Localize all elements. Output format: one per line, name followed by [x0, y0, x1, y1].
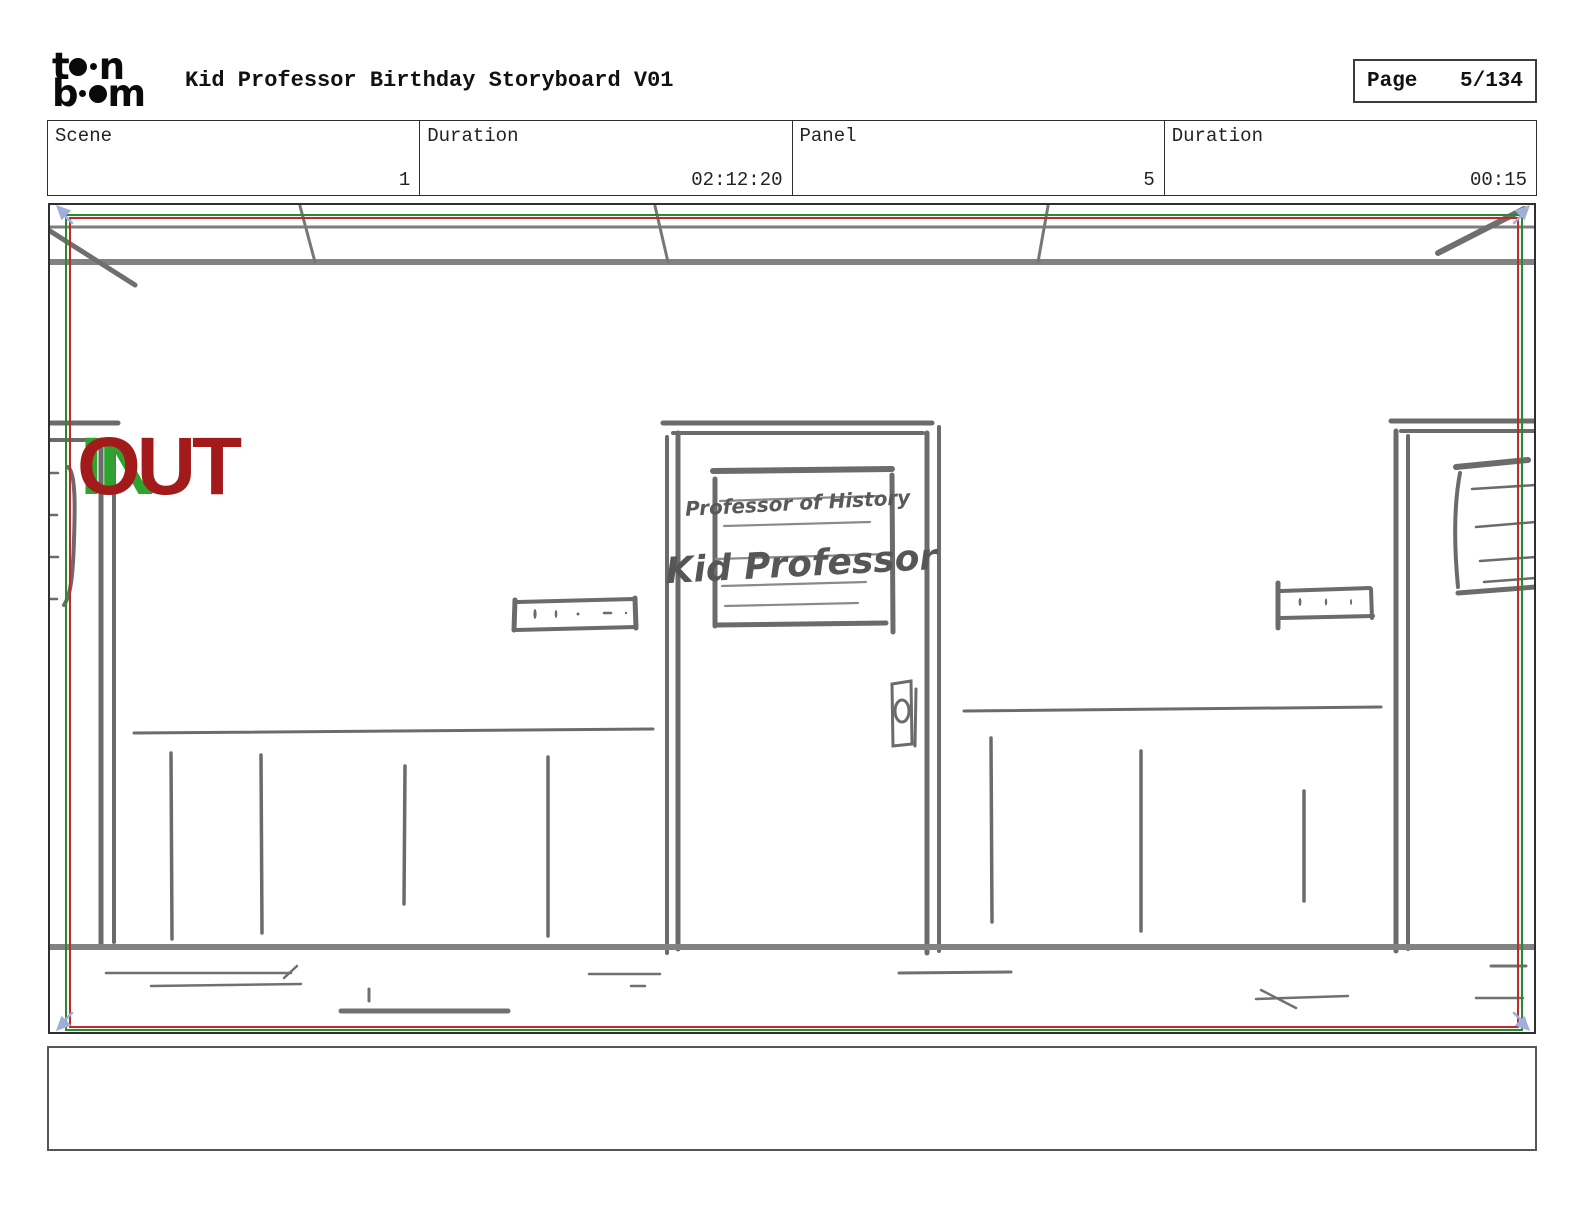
toon-boom-logo: t n b m — [52, 53, 172, 107]
logo-dot-icon — [89, 85, 107, 103]
panel-duration-value: 00:15 — [1470, 169, 1527, 191]
page-value: 5/134 — [1460, 70, 1523, 93]
door-sign-line2: Kid Professor — [665, 537, 941, 592]
panel-label: Panel — [800, 125, 857, 147]
scene-duration-label: Duration — [427, 125, 518, 147]
logo-letter: b — [52, 80, 77, 107]
door-sign-line1: Professor of History — [684, 485, 911, 521]
panel-info-bar: Scene 1 Duration 02:12:20 Panel 5 Durati… — [47, 120, 1537, 196]
panel-duration-label: Duration — [1172, 125, 1263, 147]
scene-value: 1 — [399, 169, 410, 191]
scene-duration-cell: Duration 02:12:20 — [419, 121, 791, 195]
scene-cell: Scene 1 — [48, 121, 419, 195]
panel-value: 5 — [1143, 169, 1154, 191]
storyboard-panel: Professor of History Kid Professor — [48, 203, 1536, 1034]
logo-letter: m — [108, 80, 145, 107]
page-label: Page — [1367, 70, 1417, 93]
camera-out-label: OUT — [77, 426, 238, 508]
logo-row-2: b m — [52, 80, 172, 107]
scene-duration-value: 02:12:20 — [691, 169, 782, 191]
panel-cell: Panel 5 — [792, 121, 1164, 195]
project-title: Kid Professor Birthday Storyboard V01 — [185, 68, 673, 93]
panel-duration-cell: Duration 00:15 — [1164, 121, 1536, 195]
storyboard-export-page: t n b m Kid Professor Birthday Storyboar… — [0, 0, 1584, 1224]
scene-label: Scene — [55, 125, 112, 147]
logo-dot-icon — [79, 90, 86, 97]
page-number-box: Page 5/134 — [1353, 59, 1537, 103]
caption-box — [47, 1046, 1537, 1151]
hallway-sketch: Professor of History Kid Professor — [50, 205, 1536, 1032]
logo-dot-icon — [90, 63, 97, 70]
